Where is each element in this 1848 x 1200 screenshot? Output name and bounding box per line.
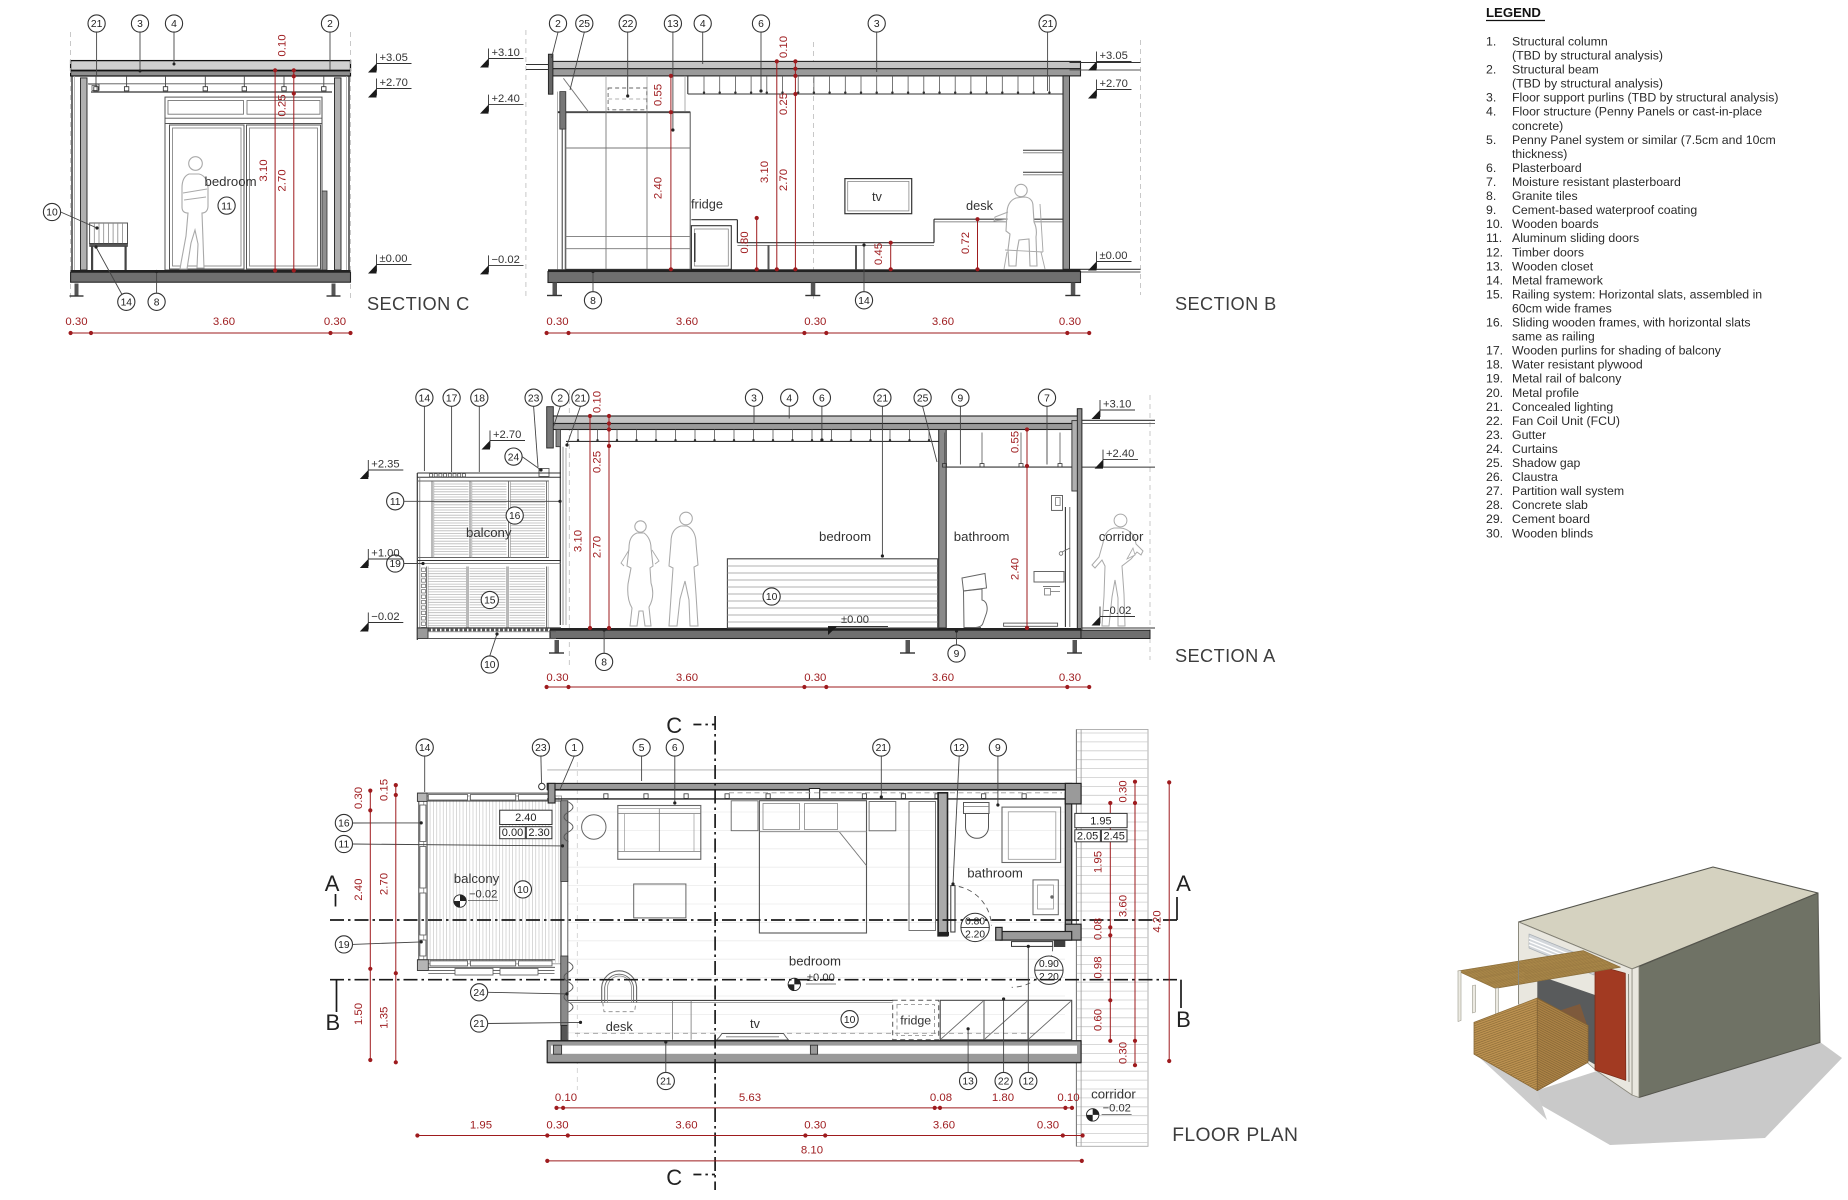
svg-text:16: 16 (338, 819, 350, 830)
svg-text:1.95: 1.95 (470, 1120, 492, 1132)
svg-text:0.30: 0.30 (804, 672, 826, 684)
svg-text:+2.35: +2.35 (371, 459, 399, 471)
svg-text:Floor support purlins (TBD by: Floor support purlins (TBD by structural… (1512, 91, 1779, 105)
svg-text:14: 14 (419, 743, 431, 754)
svg-text:10: 10 (484, 660, 496, 671)
svg-text:12.: 12. (1486, 245, 1503, 259)
svg-text:4: 4 (171, 19, 177, 30)
svg-text:1.: 1. (1486, 35, 1496, 49)
svg-text:9.: 9. (1486, 203, 1496, 217)
svg-text:Floor structure (Penny Panels: Floor structure (Penny Panels or cast-in… (1512, 105, 1762, 119)
svg-text:corridor: corridor (1099, 529, 1144, 544)
svg-text:2.70: 2.70 (276, 169, 288, 191)
svg-text:±0.00: ±0.00 (1100, 250, 1128, 262)
svg-text:0.98: 0.98 (1093, 956, 1105, 978)
svg-text:concrete): concrete) (1512, 119, 1563, 133)
svg-text:0.00: 0.00 (502, 827, 523, 839)
svg-text:8.: 8. (1486, 189, 1496, 203)
svg-text:Partition wall system: Partition wall system (1512, 484, 1624, 498)
svg-text:2.20: 2.20 (1039, 972, 1059, 983)
svg-text:14.: 14. (1486, 273, 1503, 287)
svg-text:corridor: corridor (1091, 1087, 1136, 1102)
svg-text:19: 19 (338, 940, 350, 951)
svg-text:8: 8 (154, 298, 160, 309)
svg-text:−0.02: −0.02 (469, 889, 497, 901)
svg-text:17: 17 (446, 393, 458, 404)
svg-text:30.: 30. (1486, 526, 1503, 540)
svg-text:bathroom: bathroom (954, 529, 1010, 544)
svg-text:24: 24 (508, 452, 520, 463)
svg-text:Metal profile: Metal profile (1512, 386, 1579, 400)
svg-text:1.35: 1.35 (379, 1007, 391, 1029)
svg-text:3: 3 (874, 19, 880, 30)
svg-text:2: 2 (555, 19, 561, 30)
svg-text:3.10: 3.10 (573, 530, 585, 552)
svg-text:+2.70: +2.70 (493, 429, 521, 441)
svg-text:−0.02: −0.02 (492, 254, 520, 266)
svg-text:balcony: balcony (454, 871, 500, 886)
svg-text:21: 21 (575, 393, 587, 404)
svg-text:7.: 7. (1486, 175, 1496, 189)
svg-text:11: 11 (390, 497, 401, 508)
svg-text:+3.10: +3.10 (492, 47, 520, 59)
svg-text:Cement-based waterproof coatin: Cement-based waterproof coating (1512, 203, 1697, 217)
svg-text:21: 21 (876, 743, 888, 754)
svg-text:0.08: 0.08 (1093, 918, 1105, 940)
svg-text:17.: 17. (1486, 344, 1503, 358)
svg-text:Wooden blinds: Wooden blinds (1512, 526, 1593, 540)
svg-text:3.60: 3.60 (676, 672, 698, 684)
svg-text:Sliding wooden frames, with ho: Sliding wooden frames, with horizontal s… (1512, 316, 1751, 330)
svg-text:6.: 6. (1486, 161, 1496, 175)
svg-text:3.60: 3.60 (933, 1120, 955, 1132)
svg-text:Shadow gap: Shadow gap (1512, 456, 1581, 470)
svg-text:19: 19 (389, 559, 401, 570)
svg-text:FLOOR PLAN: FLOOR PLAN (1172, 1125, 1298, 1146)
svg-text:18.: 18. (1486, 358, 1503, 372)
svg-text:1.50: 1.50 (353, 1003, 365, 1025)
svg-text:B: B (326, 1010, 341, 1035)
svg-text:tv: tv (750, 1016, 761, 1031)
svg-text:1.95: 1.95 (1090, 815, 1111, 827)
svg-text:23.: 23. (1486, 428, 1503, 442)
svg-text:Curtains: Curtains (1512, 442, 1558, 456)
svg-text:27.: 27. (1486, 484, 1503, 498)
svg-text:22: 22 (998, 1077, 1010, 1088)
svg-text:25.: 25. (1486, 456, 1503, 470)
svg-text:(TBD by structural analysis): (TBD by structural analysis) (1512, 77, 1663, 91)
svg-text:3.: 3. (1486, 91, 1496, 105)
svg-text:21: 21 (91, 19, 103, 30)
svg-text:2.30: 2.30 (528, 827, 549, 839)
svg-text:11: 11 (221, 201, 232, 212)
svg-text:0.45: 0.45 (873, 243, 885, 265)
svg-text:9: 9 (995, 743, 1001, 754)
svg-text:3.60: 3.60 (213, 316, 235, 328)
svg-text:0.10: 0.10 (1057, 1092, 1079, 1104)
svg-text:Metal rail of balcony: Metal rail of balcony (1512, 372, 1622, 386)
svg-text:B: B (1176, 1007, 1191, 1032)
svg-text:bedroom: bedroom (819, 529, 871, 544)
svg-text:fridge: fridge (900, 1014, 931, 1028)
svg-text:6: 6 (672, 743, 678, 754)
svg-text:0.25: 0.25 (592, 451, 604, 473)
svg-text:14: 14 (858, 296, 870, 307)
svg-text:0.55: 0.55 (653, 84, 665, 106)
svg-text:6: 6 (758, 19, 764, 30)
svg-text:+1.00: +1.00 (371, 548, 399, 560)
svg-text:±0.00: ±0.00 (380, 253, 408, 265)
svg-text:25: 25 (579, 19, 591, 30)
svg-text:2.40: 2.40 (1010, 558, 1022, 580)
svg-text:21: 21 (660, 1077, 672, 1088)
svg-text:29.: 29. (1486, 512, 1503, 526)
svg-text:bathroom: bathroom (967, 866, 1023, 881)
svg-text:0.30: 0.30 (1118, 1042, 1130, 1064)
svg-text:9: 9 (954, 649, 960, 660)
svg-text:2.: 2. (1486, 63, 1496, 77)
svg-text:+2.40: +2.40 (492, 93, 520, 105)
svg-text:3.60: 3.60 (1118, 895, 1130, 917)
svg-text:Granite tiles: Granite tiles (1512, 189, 1578, 203)
svg-text:19.: 19. (1486, 372, 1503, 386)
svg-text:13: 13 (667, 19, 679, 30)
svg-text:Structural beam: Structural beam (1512, 63, 1599, 77)
svg-text:0.25: 0.25 (778, 93, 790, 115)
svg-text:0.30: 0.30 (353, 787, 365, 809)
svg-text:28.: 28. (1486, 498, 1503, 512)
svg-text:2.40: 2.40 (653, 177, 665, 199)
svg-text:A: A (325, 871, 340, 896)
svg-text:0.30: 0.30 (1059, 316, 1081, 328)
svg-text:8: 8 (601, 658, 607, 669)
svg-text:2.05: 2.05 (1077, 830, 1098, 842)
svg-text:0.30: 0.30 (1037, 1120, 1059, 1132)
svg-text:thickness): thickness) (1512, 147, 1567, 161)
svg-text:0.90: 0.90 (1039, 959, 1059, 970)
svg-text:4.20: 4.20 (1152, 910, 1164, 932)
svg-text:0.30: 0.30 (804, 1120, 826, 1132)
svg-text:0.30: 0.30 (1059, 672, 1081, 684)
svg-text:Wooden boards: Wooden boards (1512, 217, 1599, 231)
svg-text:4: 4 (786, 393, 792, 404)
svg-text:25: 25 (917, 393, 929, 404)
svg-text:2.70: 2.70 (592, 536, 604, 558)
svg-text:21: 21 (877, 393, 889, 404)
svg-text:10: 10 (844, 1015, 856, 1026)
svg-text:0.30: 0.30 (804, 316, 826, 328)
svg-text:23: 23 (535, 743, 547, 754)
svg-text:+3.10: +3.10 (1103, 399, 1131, 411)
svg-text:18: 18 (474, 393, 486, 404)
svg-text:SECTION B: SECTION B (1175, 294, 1277, 314)
svg-text:0.25: 0.25 (276, 94, 288, 116)
svg-text:same as railing: same as railing (1512, 330, 1595, 344)
svg-text:Railing system: Horizontal sla: Railing system: Horizontal slats, assemb… (1512, 287, 1762, 301)
svg-text:0.30: 0.30 (546, 672, 568, 684)
svg-text:desk: desk (966, 198, 994, 213)
svg-text:2.40: 2.40 (515, 812, 536, 824)
svg-text:24.: 24. (1486, 442, 1503, 456)
svg-text:6: 6 (819, 393, 825, 404)
svg-text:8: 8 (590, 296, 596, 307)
svg-text:balcony: balcony (466, 525, 512, 540)
svg-text:(TBD by structural analysis): (TBD by structural analysis) (1512, 49, 1663, 63)
svg-text:desk: desk (606, 1019, 634, 1034)
svg-text:10: 10 (517, 885, 529, 896)
svg-text:26.: 26. (1486, 470, 1503, 484)
svg-text:0.55: 0.55 (1010, 431, 1022, 453)
svg-text:2.40: 2.40 (353, 879, 365, 901)
svg-text:±0.00: ±0.00 (807, 972, 835, 984)
svg-text:3.10: 3.10 (258, 159, 270, 181)
svg-text:Wooden purlins for shading of: Wooden purlins for shading of balcony (1512, 344, 1722, 358)
svg-text:A: A (1176, 871, 1191, 896)
svg-text:Concealed lighting: Concealed lighting (1512, 400, 1613, 414)
svg-text:0.08: 0.08 (930, 1092, 952, 1104)
svg-text:60cm wide frames: 60cm wide frames (1512, 302, 1612, 316)
svg-text:tv: tv (872, 189, 883, 204)
svg-text:15.: 15. (1486, 287, 1503, 301)
svg-text:2: 2 (557, 393, 563, 404)
svg-text:3: 3 (137, 19, 143, 30)
svg-text:7: 7 (1044, 393, 1050, 404)
svg-text:2.20: 2.20 (965, 929, 985, 940)
svg-text:21: 21 (473, 1019, 485, 1030)
svg-text:5.: 5. (1486, 133, 1496, 147)
svg-text:+2.70: +2.70 (1100, 78, 1128, 90)
svg-text:Cement board: Cement board (1512, 512, 1590, 526)
svg-text:bedroom: bedroom (205, 174, 257, 189)
svg-text:−0.02: −0.02 (1103, 1103, 1131, 1115)
svg-text:Gutter: Gutter (1512, 428, 1546, 442)
svg-text:10.: 10. (1486, 217, 1503, 231)
svg-text:−0.02: −0.02 (1103, 605, 1131, 617)
svg-text:Structural column: Structural column (1512, 35, 1608, 49)
svg-text:22: 22 (622, 19, 634, 30)
svg-text:0.30: 0.30 (1118, 780, 1130, 802)
svg-text:11: 11 (339, 840, 350, 851)
svg-text:12: 12 (1023, 1077, 1035, 1088)
svg-text:fridge: fridge (691, 197, 723, 212)
svg-text:16: 16 (509, 511, 521, 522)
svg-text:2: 2 (327, 19, 333, 30)
svg-text:10: 10 (766, 592, 778, 603)
svg-text:C: C (666, 1165, 682, 1190)
svg-text:1.95: 1.95 (1093, 851, 1105, 873)
svg-text:3.60: 3.60 (932, 316, 954, 328)
svg-text:0.30: 0.30 (546, 1120, 568, 1132)
svg-text:15: 15 (484, 596, 496, 607)
svg-text:0.80: 0.80 (739, 231, 751, 253)
svg-text:bedroom: bedroom (789, 953, 841, 968)
svg-text:2.70: 2.70 (379, 873, 391, 895)
svg-text:Concrete slab: Concrete slab (1512, 498, 1588, 512)
svg-text:10: 10 (46, 208, 58, 219)
svg-text:Claustra: Claustra (1512, 470, 1558, 484)
svg-text:23: 23 (528, 393, 540, 404)
svg-text:+2.70: +2.70 (380, 77, 408, 89)
svg-text:2.45: 2.45 (1103, 830, 1124, 842)
svg-text:Timber doors: Timber doors (1512, 245, 1584, 259)
svg-text:20.: 20. (1486, 386, 1503, 400)
svg-text:5: 5 (639, 743, 645, 754)
svg-text:11.: 11. (1486, 231, 1502, 245)
svg-text:Moisture resistant plasterboar: Moisture resistant plasterboard (1512, 175, 1681, 189)
svg-text:1.80: 1.80 (992, 1092, 1014, 1104)
svg-text:Plasterboard: Plasterboard (1512, 161, 1582, 175)
svg-text:Aluminum sliding doors: Aluminum sliding doors (1512, 231, 1639, 245)
svg-text:9: 9 (958, 393, 964, 404)
svg-text:4.: 4. (1486, 105, 1496, 119)
svg-text:14: 14 (121, 298, 133, 309)
svg-text:5.63: 5.63 (739, 1092, 761, 1104)
svg-text:3.60: 3.60 (932, 672, 954, 684)
svg-text:22.: 22. (1486, 414, 1503, 428)
svg-text:13: 13 (962, 1077, 974, 1088)
svg-text:2.70: 2.70 (778, 169, 790, 191)
svg-text:24: 24 (473, 988, 485, 999)
svg-text:0.30: 0.30 (324, 316, 346, 328)
svg-text:13.: 13. (1486, 259, 1503, 273)
svg-text:SECTION A: SECTION A (1175, 646, 1276, 666)
svg-text:Fan Coil Unit (FCU): Fan Coil Unit (FCU) (1512, 414, 1620, 428)
svg-text:Wooden closet: Wooden closet (1512, 259, 1594, 273)
svg-text:−0.02: −0.02 (371, 611, 399, 623)
svg-text:21: 21 (1042, 19, 1054, 30)
svg-text:3.60: 3.60 (676, 316, 698, 328)
svg-text:Metal framework: Metal framework (1512, 273, 1604, 287)
svg-text:SECTION C: SECTION C (367, 294, 470, 314)
svg-text:+2.40: +2.40 (1106, 448, 1134, 460)
svg-text:+3.05: +3.05 (1100, 50, 1128, 62)
svg-text:14: 14 (419, 393, 431, 404)
svg-text:0.30: 0.30 (546, 316, 568, 328)
svg-text:Water resistant plywood: Water resistant plywood (1512, 358, 1643, 372)
svg-text:8.10: 8.10 (801, 1145, 823, 1157)
svg-text:±0.00: ±0.00 (841, 614, 869, 626)
svg-text:12: 12 (953, 743, 965, 754)
svg-text:0.15: 0.15 (379, 779, 391, 801)
svg-text:16.: 16. (1486, 316, 1503, 330)
svg-text:+3.05: +3.05 (380, 52, 408, 64)
svg-text:4: 4 (700, 19, 706, 30)
svg-text:0.10: 0.10 (778, 36, 790, 58)
svg-text:0.10: 0.10 (555, 1092, 577, 1104)
svg-text:0.80: 0.80 (965, 916, 985, 927)
svg-text:0.60: 0.60 (1093, 1009, 1105, 1031)
svg-text:1: 1 (571, 743, 577, 754)
svg-text:LEGEND: LEGEND (1486, 5, 1541, 20)
svg-text:0.30: 0.30 (65, 316, 87, 328)
svg-text:0.10: 0.10 (592, 391, 604, 413)
svg-text:0.10: 0.10 (276, 34, 288, 56)
svg-text:0.72: 0.72 (960, 232, 972, 254)
svg-text:Penny Panel system or similar: Penny Panel system or similar (7.5cm and… (1512, 133, 1776, 147)
svg-text:21.: 21. (1486, 400, 1503, 414)
svg-text:3: 3 (751, 393, 757, 404)
svg-text:3.60: 3.60 (675, 1120, 697, 1132)
svg-text:C: C (666, 713, 682, 738)
svg-text:3.10: 3.10 (759, 161, 771, 183)
